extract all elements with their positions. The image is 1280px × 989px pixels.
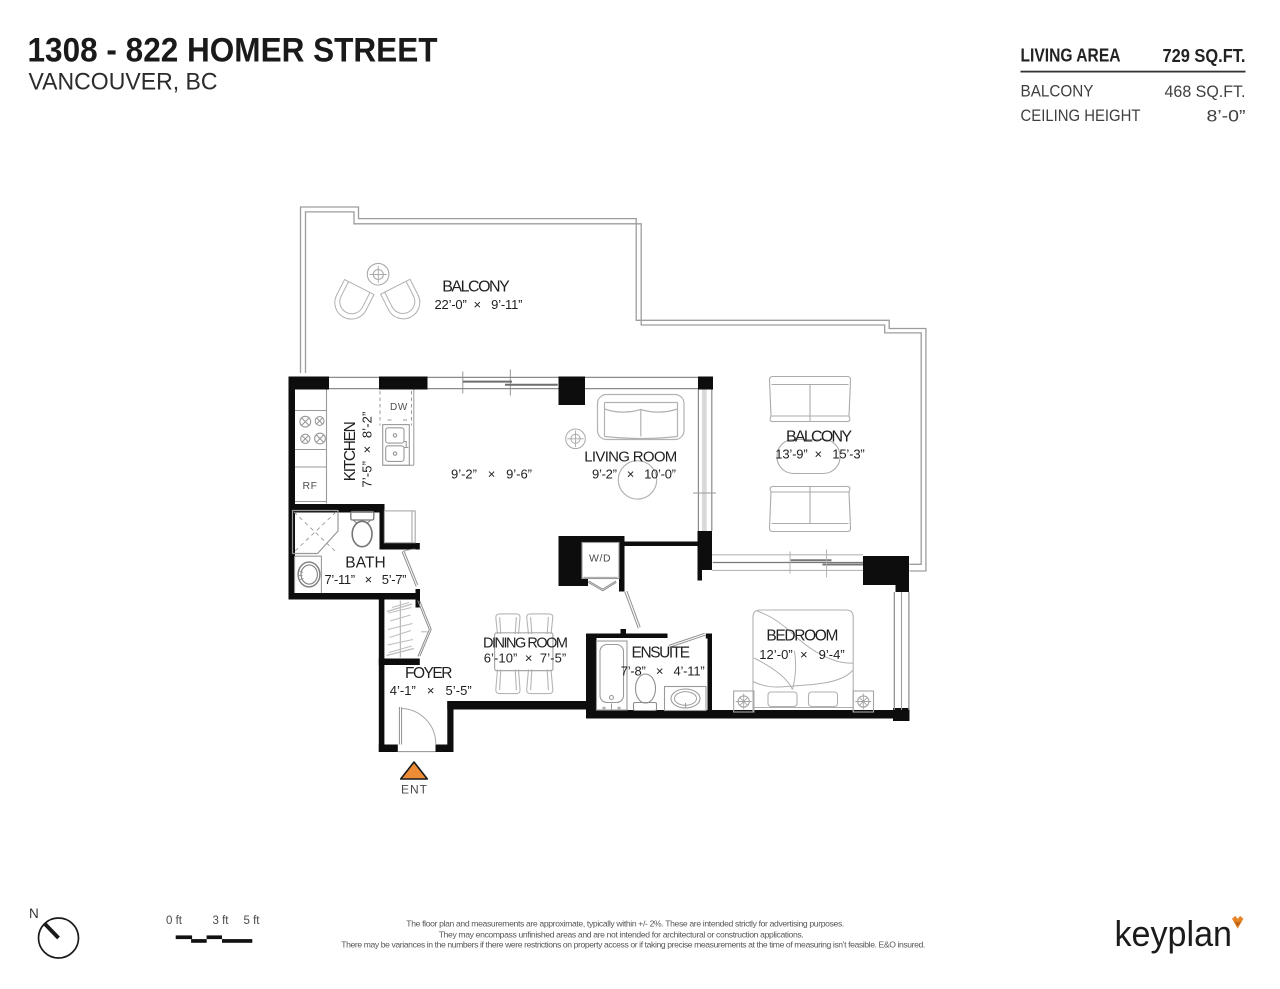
svg-text:0 ft: 0 ft (166, 915, 183, 927)
svg-text:keyplan: keyplan (1115, 913, 1233, 954)
svg-text:N: N (29, 906, 39, 921)
svg-text:3 ft: 3 ft (213, 915, 230, 927)
svg-text:5 ft: 5 ft (244, 915, 261, 927)
svg-text:There may be variances in the: There may be variances in the numbers if… (341, 939, 925, 949)
svg-text:They may encompass unfinished: They may encompass unfinished areas and … (439, 929, 804, 939)
svg-text:The floor plan and measurement: The floor plan and measurements are appr… (406, 918, 844, 928)
